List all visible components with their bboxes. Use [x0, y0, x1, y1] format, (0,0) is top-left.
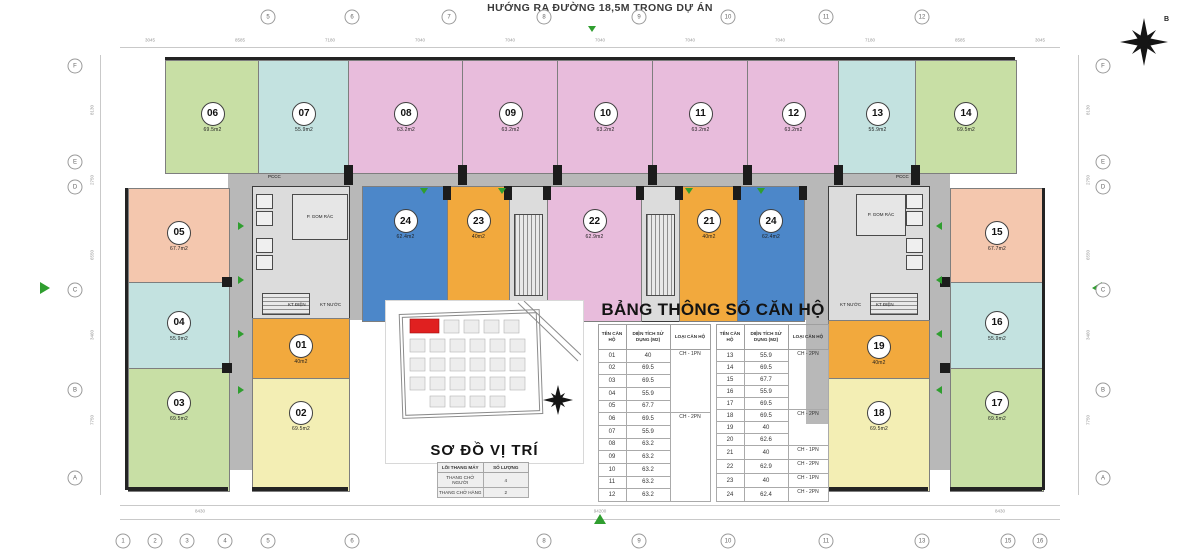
- dim-line-bottom-2: [120, 519, 1060, 520]
- dimension-label: 7040: [775, 38, 785, 43]
- grid-bubble: 11: [819, 534, 834, 549]
- dimension-label: 3045: [1035, 38, 1045, 43]
- lift-row: THANG CHỞ HÀNG2: [438, 488, 529, 498]
- lift-col-header: LÕI THANG MÁY: [438, 463, 484, 473]
- unit-label: 2140m2: [697, 209, 721, 240]
- unit-label: 0755.9m2: [292, 102, 316, 133]
- grid-bubble: A: [1096, 471, 1111, 486]
- wall-stub: [940, 363, 950, 373]
- spec-cell: 11: [598, 476, 626, 489]
- wall-stub: [648, 165, 657, 185]
- dimension-label: 7040: [505, 38, 515, 43]
- unit-area: 69.5m2: [204, 127, 222, 133]
- unit-07: 0755.9m2: [258, 60, 350, 174]
- wall-stub: [743, 165, 752, 185]
- grid-bubble: A: [68, 471, 83, 486]
- lift-cell: THANG CHỞ NGƯỜI: [438, 473, 484, 488]
- wall-stub: [222, 277, 232, 287]
- unit-area: 55.9m2: [295, 127, 313, 133]
- unit-label: 2462.4m2: [394, 209, 418, 240]
- grid-bubble: 13: [915, 534, 930, 549]
- unit-area: 67.7m2: [988, 246, 1006, 252]
- spec-cell: 63.2: [626, 476, 670, 489]
- spec-type-cell: CH - 2PN: [788, 410, 828, 446]
- spec-row: 2262.9CH - 2PN: [716, 460, 828, 474]
- unit-area: 63.2m2: [597, 127, 615, 133]
- unit-03: 0369.5m2: [128, 368, 230, 492]
- entry-arrow: [238, 222, 244, 230]
- spec-cell: 63.2: [626, 438, 670, 451]
- spec-cell: 03: [598, 375, 626, 388]
- unit-number: 18: [867, 401, 891, 425]
- unit-label: 0455.9m2: [167, 311, 191, 342]
- grid-bubble: E: [68, 155, 83, 170]
- dim-line-top: [120, 47, 1060, 48]
- unit-number: 15: [985, 221, 1009, 245]
- wall-stub: [911, 165, 920, 185]
- unit-area: 62.4m2: [762, 234, 780, 240]
- dimension-label: 8130: [90, 105, 95, 115]
- dimension-label: 8430: [195, 509, 205, 514]
- unit-11: 1163.2m2: [652, 60, 749, 174]
- unit-area: 55.9m2: [869, 127, 887, 133]
- unit-17: 1769.5m2: [950, 368, 1044, 492]
- sheet-title: HƯỚNG RA ĐƯỜNG 18,5M TRONG DỰ ÁN: [0, 2, 1200, 14]
- spec-cell: 15: [716, 374, 744, 386]
- unit-label: 2262.9m2: [583, 209, 607, 240]
- kt-nuoc-label: KT NƯỚC: [320, 302, 341, 307]
- grid-bubble: C: [1096, 283, 1111, 298]
- unit-12: 1263.2m2: [747, 60, 840, 174]
- unit-label: 1063.2m2: [594, 102, 618, 133]
- unit-15: 1567.7m2: [950, 188, 1044, 284]
- grid-bubble: 4: [218, 534, 233, 549]
- unit-number: 23: [467, 209, 491, 233]
- site-entry-arrow-bottom: [594, 514, 606, 524]
- unit-10: 1063.2m2: [557, 60, 654, 174]
- grid-bubble: C: [68, 283, 83, 298]
- wall-stub: [443, 186, 451, 200]
- exterior-wall: [125, 188, 128, 490]
- unit-label: 2340m2: [467, 209, 491, 240]
- unit-02: 0269.5m2: [252, 378, 350, 492]
- dimension-label: 7040: [415, 38, 425, 43]
- stairs-b: [646, 214, 675, 296]
- spec-cell: 40: [744, 474, 788, 488]
- spec-type-cell: CH - 2PN: [788, 460, 828, 474]
- spec-cell: 55.9: [626, 425, 670, 438]
- unit-area: 69.5m2: [292, 426, 310, 432]
- unit-06: 0669.5m2: [165, 60, 260, 174]
- kt-dien-label: KT ĐIỆN: [288, 302, 306, 307]
- spec-row: 2462.4CH - 2PN: [716, 488, 828, 502]
- entry-arrow: [238, 276, 244, 284]
- spec-col-header: LOẠI CĂN HỘ: [670, 325, 710, 350]
- spec-col-header: TÊN CĂN HỘ: [598, 325, 626, 350]
- unit-label: 1469.5m2: [954, 102, 978, 133]
- grid-bubble: 5: [261, 534, 276, 549]
- floor-plan-sheet: HƯỚNG RA ĐƯỜNG 18,5M TRONG DỰ ÁN P. GOM …: [0, 0, 1200, 551]
- wall-stub: [222, 363, 232, 373]
- spec-cell: 55.9: [744, 350, 788, 362]
- north-compass: B: [1120, 18, 1168, 71]
- spec-cell: 04: [598, 387, 626, 400]
- unit-number: 09: [499, 102, 523, 126]
- unit-number: 01: [289, 334, 313, 358]
- unit-number: 04: [167, 311, 191, 335]
- entry-arrow: [420, 188, 428, 194]
- entry-arrow: [238, 330, 244, 338]
- exterior-wall: [128, 487, 228, 491]
- elevator-shaft: [906, 238, 923, 253]
- spec-col-header: TÊN CĂN HỘ: [716, 325, 744, 350]
- grid-bubble: 12: [915, 10, 930, 25]
- trash-room-right: P. GOM RÁC: [856, 194, 906, 236]
- lift-cell: THANG CHỞ HÀNG: [438, 488, 484, 498]
- spec-cell: 62.6: [744, 434, 788, 446]
- grid-bubble: 15: [1001, 534, 1016, 549]
- stairs-a: [514, 214, 543, 296]
- dimension-label: 2750: [90, 175, 95, 185]
- spec-cell: 69.5: [744, 362, 788, 374]
- grid-bubble: 10: [721, 534, 736, 549]
- spec-cell: 14: [716, 362, 744, 374]
- unit-area: 55.9m2: [170, 336, 188, 342]
- spec-table-right: TÊN CĂN HỘ DIỆN TÍCH SỬ DỤNG (M2) LOẠI C…: [716, 324, 829, 502]
- entry-arrow: [498, 188, 506, 194]
- map-caption: SƠ ĐỒ VỊ TRÍ: [386, 442, 583, 459]
- wall-stub: [458, 165, 467, 185]
- unit-label: 2462.4m2: [759, 209, 783, 240]
- unit-label: 1940m2: [867, 335, 891, 366]
- grid-bubble: 16: [1033, 534, 1048, 549]
- exterior-wall: [1042, 188, 1045, 490]
- dimension-label: 7180: [325, 38, 335, 43]
- dimension-label: 94200: [594, 509, 607, 514]
- elevator-shaft: [256, 255, 273, 270]
- elevator-shaft: [256, 238, 273, 253]
- spec-cell: 01: [598, 350, 626, 363]
- unit-number: 24: [759, 209, 783, 233]
- unit-number: 21: [697, 209, 721, 233]
- spec-cell: 63.2: [626, 489, 670, 502]
- spec-cell: 69.5: [744, 410, 788, 422]
- grid-bubble: 8: [537, 10, 552, 25]
- dimension-label: 8430: [995, 509, 1005, 514]
- spec-type-cell: CH - 2PN: [670, 413, 710, 502]
- grid-bubble: D: [68, 180, 83, 195]
- exterior-wall: [252, 487, 348, 491]
- corridor-mid-left: [348, 186, 362, 320]
- entry-arrow: [936, 386, 942, 394]
- unit-01: 0140m2: [252, 318, 350, 380]
- spec-type-cell: CH - 1PN: [788, 446, 828, 460]
- entry-arrow: [685, 188, 693, 194]
- wall-stub: [553, 165, 562, 185]
- unit-area: 63.2m2: [692, 127, 710, 133]
- dimension-label: 8585: [955, 38, 965, 43]
- unit-number: 19: [867, 335, 891, 359]
- exterior-wall: [165, 57, 1015, 60]
- spec-cell: 21: [716, 446, 744, 460]
- north-marker-arrow: [588, 26, 596, 32]
- dimension-label: 3460: [90, 330, 95, 340]
- grid-bubble: 1: [116, 534, 131, 549]
- spec-cell: 09: [598, 451, 626, 464]
- spec-row: 0140CH - 1PN: [598, 350, 710, 363]
- wall-stub: [675, 186, 683, 200]
- unit-area: 62.4m2: [397, 234, 415, 240]
- spec-cell: 62.4: [744, 488, 788, 502]
- spec-cell: 69.5: [626, 413, 670, 426]
- wall-stub: [344, 165, 353, 185]
- unit-label: 1163.2m2: [689, 102, 713, 133]
- lift-row: THANG CHỞ NGƯỜI4: [438, 473, 529, 488]
- location-map: SƠ ĐỒ VỊ TRÍ: [385, 300, 584, 464]
- unit-label: 1769.5m2: [985, 391, 1009, 422]
- spec-cell: 62.9: [744, 460, 788, 474]
- compass-north-label: B: [1164, 16, 1169, 23]
- spec-type-cell: CH - 2PN: [788, 488, 828, 502]
- spec-cell: 69.5: [744, 398, 788, 410]
- spec-table-left: TÊN CĂN HỘ DIỆN TÍCH SỬ DỤNG (M2) LOẠI C…: [598, 324, 711, 502]
- elevator-shaft: [256, 211, 273, 226]
- unit-number: 24: [394, 209, 418, 233]
- entry-arrow: [936, 276, 942, 284]
- spec-cell: 40: [744, 446, 788, 460]
- grid-bubble: F: [1096, 59, 1111, 74]
- spec-cell: 40: [626, 350, 670, 363]
- pccc-label: PCCC: [268, 174, 281, 179]
- spec-type-cell: CH - 2PN: [788, 350, 828, 410]
- unit-number: 08: [394, 102, 418, 126]
- grid-bubble: 9: [632, 534, 647, 549]
- unit-label: 1567.7m2: [985, 221, 1009, 252]
- spec-cell: 10: [598, 463, 626, 476]
- grid-bubble: B: [1096, 383, 1111, 398]
- spec-cell: 06: [598, 413, 626, 426]
- unit-area: 69.5m2: [957, 127, 975, 133]
- unit-label: 1355.9m2: [866, 102, 890, 133]
- spec-cell: 69.5: [626, 375, 670, 388]
- unit-area: 69.5m2: [170, 416, 188, 422]
- grid-bubble: 9: [632, 10, 647, 25]
- trash-room-label: P. GOM RÁC: [307, 215, 333, 220]
- unit-16: 1655.9m2: [950, 282, 1044, 370]
- spec-table-panel: BẢNG THÔNG SỐ CĂN HỘ TÊN CĂN HỘ DIỆN TÍC…: [588, 300, 838, 502]
- unit-09: 0963.2m2: [462, 60, 559, 174]
- elevator-shaft: [906, 255, 923, 270]
- unit-number: 22: [583, 209, 607, 233]
- spec-cell: 55.9: [744, 386, 788, 398]
- unit-area: 55.9m2: [988, 336, 1006, 342]
- unit-area: 63.2m2: [397, 127, 415, 133]
- unit-label: 0863.2m2: [394, 102, 418, 133]
- unit-number: 02: [289, 401, 313, 425]
- lift-cell: 2: [483, 488, 529, 498]
- unit-number: 10: [594, 102, 618, 126]
- unit-number: 13: [866, 102, 890, 126]
- unit-label: 1869.5m2: [867, 401, 891, 432]
- unit-area: 69.5m2: [988, 416, 1006, 422]
- unit-label: 0669.5m2: [201, 102, 225, 133]
- spec-row: 2340CH - 1PN: [716, 474, 828, 488]
- grid-bubble: 2: [148, 534, 163, 549]
- trash-room-left: P. GOM RÁC: [292, 194, 348, 240]
- lift-col-header: SỐ LƯỢNG: [483, 463, 529, 473]
- unit-area: 40m2: [872, 360, 885, 366]
- unit-14: 1469.5m2: [915, 60, 1017, 174]
- grid-bubble: 5: [261, 10, 276, 25]
- entry-arrow: [757, 188, 765, 194]
- dimension-label: 6550: [90, 250, 95, 260]
- unit-13: 1355.9m2: [838, 60, 917, 174]
- spec-col-header: DIỆN TÍCH SỬ DỤNG (M2): [744, 325, 788, 350]
- unit-area: 40m2: [702, 234, 715, 240]
- dimension-label: 8585: [235, 38, 245, 43]
- highlighted-block: [410, 319, 439, 333]
- unit-label: 1655.9m2: [985, 311, 1009, 342]
- unit-number: 17: [985, 391, 1009, 415]
- spec-cell: 63.2: [626, 451, 670, 464]
- dimension-label: 7750: [1086, 415, 1091, 425]
- spec-col-header: DIỆN TÍCH SỬ DỤNG (M2): [626, 325, 670, 350]
- elevator-shaft: [906, 194, 923, 209]
- spec-cell: 19: [716, 422, 744, 434]
- wall-stub: [834, 165, 843, 185]
- unit-number: 11: [689, 102, 713, 126]
- spec-cell: 07: [598, 425, 626, 438]
- spec-cell: 22: [716, 460, 744, 474]
- spec-cell: 08: [598, 438, 626, 451]
- spec-cell: 17: [716, 398, 744, 410]
- dimension-label: 7040: [595, 38, 605, 43]
- spec-cell: 23: [716, 474, 744, 488]
- spec-type-cell: CH - 1PN: [670, 350, 710, 413]
- spec-cell: 40: [744, 422, 788, 434]
- spec-cell: 02: [598, 362, 626, 375]
- unit-area: 69.5m2: [870, 426, 888, 432]
- elevator-shaft: [906, 211, 923, 226]
- grid-bubble: 11: [819, 10, 834, 25]
- spec-cell: 13: [716, 350, 744, 362]
- wall-stub: [543, 186, 551, 200]
- unit-number: 12: [782, 102, 806, 126]
- spec-row: 2140CH - 1PN: [716, 446, 828, 460]
- entry-arrow: [936, 222, 942, 230]
- unit-04: 0455.9m2: [128, 282, 230, 370]
- unit-number: 07: [292, 102, 316, 126]
- dimension-label: 7040: [685, 38, 695, 43]
- elevator-shaft: [256, 194, 273, 209]
- dimension-label: 7750: [90, 415, 95, 425]
- exterior-wall: [950, 487, 1042, 491]
- dim-line-right: [1078, 55, 1079, 495]
- spec-cell: 16: [716, 386, 744, 398]
- spec-type-cell: CH - 1PN: [788, 474, 828, 488]
- unit-area: 40m2: [294, 359, 307, 365]
- unit-08: 0863.2m2: [348, 60, 464, 174]
- spec-cell: 24: [716, 488, 744, 502]
- spec-col-header: LOẠI CĂN HỘ: [788, 325, 828, 350]
- unit-number: 06: [201, 102, 225, 126]
- unit-area: 63.2m2: [785, 127, 803, 133]
- spec-cell: 55.9: [626, 387, 670, 400]
- unit-label: 0140m2: [289, 334, 313, 365]
- unit-area: 63.2m2: [502, 127, 520, 133]
- spec-row: 1355.9CH - 2PN: [716, 350, 828, 362]
- spec-cell: 20: [716, 434, 744, 446]
- dim-line-bottom-1: [120, 505, 1060, 506]
- unit-area: 67.7m2: [170, 246, 188, 252]
- dimension-label: 3045: [145, 38, 155, 43]
- unit-label: 0567.7m2: [167, 221, 191, 252]
- wall-stub: [636, 186, 644, 200]
- dimension-label: 8130: [1086, 105, 1091, 115]
- lift-cell: 4: [483, 473, 529, 488]
- unit-18: 1869.5m2: [828, 378, 930, 492]
- site-map-drawing: [386, 301, 581, 431]
- spec-table-title: BẢNG THÔNG SỐ CĂN HỘ: [588, 300, 838, 320]
- map-compass-icon: [543, 385, 573, 415]
- unit-number: 05: [167, 221, 191, 245]
- unit-19: 1940m2: [828, 320, 930, 380]
- spec-cell: 12: [598, 489, 626, 502]
- kt-nuoc-label: KT NƯỚC: [840, 302, 861, 307]
- dimension-label: 3460: [1086, 330, 1091, 340]
- grid-bubble: 8: [537, 534, 552, 549]
- spec-cell: 05: [598, 400, 626, 413]
- dimension-label: 6550: [1086, 250, 1091, 260]
- kt-dien-label: KT ĐIỆN: [876, 302, 894, 307]
- spec-cell: 67.7: [744, 374, 788, 386]
- spec-cell: 69.5: [626, 362, 670, 375]
- grid-bubble: B: [68, 383, 83, 398]
- exterior-wall: [828, 487, 928, 491]
- unit-number: 03: [167, 391, 191, 415]
- unit-label: 1263.2m2: [782, 102, 806, 133]
- pccc-label: PCCC: [896, 174, 909, 179]
- spec-row: 0669.5CH - 2PN: [598, 413, 710, 426]
- grid-bubble: D: [1096, 180, 1111, 195]
- grid-bubble: F: [68, 59, 83, 74]
- dimension-label: 2750: [1086, 175, 1091, 185]
- grid-bubble: 7: [442, 10, 457, 25]
- unit-area: 62.9m2: [586, 234, 604, 240]
- trash-room-label: P. GOM RÁC: [868, 213, 894, 218]
- wall-stub: [799, 186, 807, 200]
- spec-cell: 63.2: [626, 463, 670, 476]
- unit-label: 0369.5m2: [167, 391, 191, 422]
- site-entry-arrow-left: [40, 282, 50, 294]
- unit-number: 16: [985, 311, 1009, 335]
- spec-cell: 18: [716, 410, 744, 422]
- grid-bubble: E: [1096, 155, 1111, 170]
- unit-number: 14: [954, 102, 978, 126]
- grid-bubble: 10: [721, 10, 736, 25]
- dimension-label: 7180: [865, 38, 875, 43]
- unit-area: 40m2: [472, 234, 485, 240]
- wall-stub: [733, 186, 741, 200]
- grid-bubble: 6: [345, 534, 360, 549]
- spec-row: 1869.5CH - 2PN: [716, 410, 828, 422]
- entry-arrow: [936, 330, 942, 338]
- compass-icon: [1120, 18, 1168, 66]
- unit-05: 0567.7m2: [128, 188, 230, 284]
- grid-bubble: 6: [345, 10, 360, 25]
- unit-label: 0269.5m2: [289, 401, 313, 432]
- entry-arrow: [238, 386, 244, 394]
